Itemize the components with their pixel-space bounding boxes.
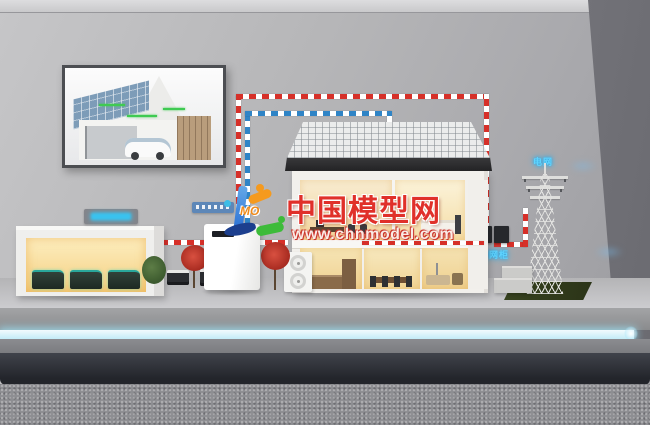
platform-front-lower — [0, 339, 650, 353]
solar-roof — [287, 122, 490, 158]
tower-insulator — [524, 179, 526, 182]
green-bush — [142, 256, 166, 284]
tower-insulator — [564, 179, 566, 182]
poster-callout-line — [127, 115, 157, 117]
wall-light-reflection — [594, 246, 624, 258]
bed-headboard — [455, 215, 461, 234]
platform-base — [0, 353, 650, 385]
vehicle — [108, 270, 140, 289]
poster-car — [125, 138, 171, 157]
tower-insulator — [560, 189, 562, 192]
carpet-floor — [0, 384, 650, 425]
red-tape-tower-vertical — [523, 208, 528, 247]
logo-figure-green — [255, 221, 284, 237]
logo-figure-orange — [247, 188, 273, 205]
armchair — [452, 273, 463, 285]
logo-dot-cyan — [224, 200, 231, 207]
watermark-brand: 中国模型网 — [286, 186, 441, 230]
garage-interior — [26, 238, 146, 292]
dining-chair — [394, 276, 400, 287]
led-light-strip — [0, 330, 634, 339]
dining-chair — [382, 276, 388, 287]
poster-storage-container — [177, 116, 211, 160]
dining-chair — [370, 276, 376, 287]
house-end-wall — [468, 180, 488, 289]
dining-room — [364, 248, 420, 289]
watermark-logo-text: MO — [240, 204, 259, 218]
maple-trunk — [193, 268, 195, 288]
charging-garage — [16, 226, 164, 296]
sofa — [426, 275, 450, 285]
poster-car-wheel — [131, 152, 139, 160]
garage-glow-sign-text — [91, 213, 131, 220]
vehicle — [32, 270, 64, 289]
dining-chair — [406, 276, 412, 287]
poster-car-wheel — [156, 152, 164, 160]
poster-callout-line — [163, 108, 185, 110]
garage-glow-sign — [84, 209, 138, 224]
step-block — [494, 278, 532, 293]
tall-cabinet — [342, 259, 356, 289]
exhibition-scene: 电网 并网柜 — [0, 0, 650, 425]
floor-lamp — [436, 263, 438, 275]
watermark-url: www.chnmodel.com — [292, 226, 454, 244]
power-grid-sign: 电网 — [533, 155, 553, 168]
red-tape-top-horizontal — [236, 94, 488, 99]
wall-light-reflection — [568, 160, 598, 172]
robot-mower — [167, 270, 189, 285]
living-room — [422, 248, 468, 289]
ceiling — [0, 0, 650, 13]
logo-swoosh-navy — [223, 220, 257, 238]
electric-meter — [494, 226, 509, 243]
wall-poster-frame — [62, 65, 226, 168]
platform-front-upper — [0, 308, 650, 330]
tower-insulator — [528, 189, 530, 192]
vehicle — [70, 270, 102, 289]
poster-callout-line — [99, 104, 125, 106]
wall-poster-image — [65, 68, 223, 165]
ac-fan — [290, 273, 306, 289]
roof-eave — [285, 157, 492, 171]
dining-table — [374, 277, 406, 283]
ac-fan — [290, 255, 306, 271]
blue-tape-top-horizontal — [245, 111, 391, 116]
